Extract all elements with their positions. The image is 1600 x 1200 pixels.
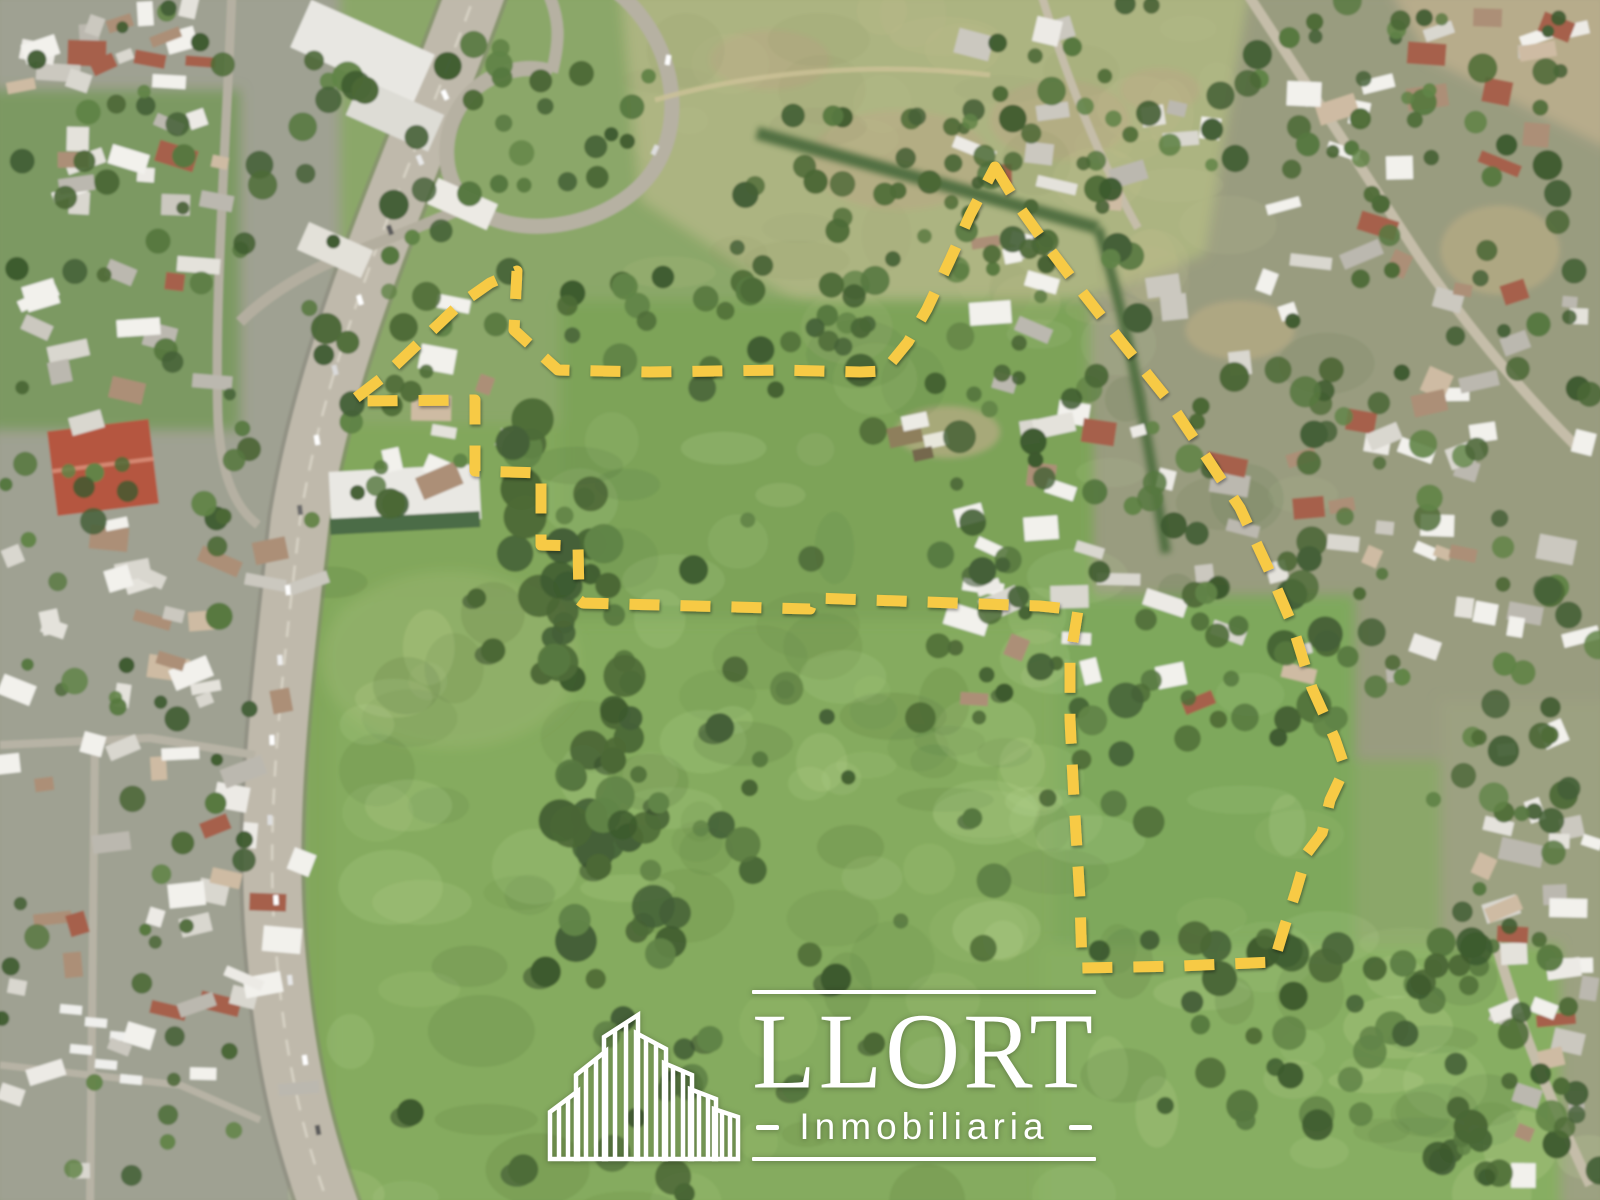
brand-tagline: Inmobiliaria xyxy=(799,1106,1048,1148)
tagline-row: Inmobiliaria xyxy=(756,1106,1092,1148)
tagline-dash-right xyxy=(1069,1125,1092,1130)
tagline-dash-left xyxy=(756,1125,779,1130)
brand-name: LLORT xyxy=(752,998,1096,1106)
brand-text-block: LLORT Inmobiliaria xyxy=(752,990,1096,1161)
satellite-land-listing-image: LLORT Inmobiliaria xyxy=(0,0,1600,1200)
buildings-icon xyxy=(546,1005,742,1163)
brand-watermark: LLORT Inmobiliaria xyxy=(546,998,1106,1163)
logo-rule-bottom xyxy=(752,1157,1096,1161)
